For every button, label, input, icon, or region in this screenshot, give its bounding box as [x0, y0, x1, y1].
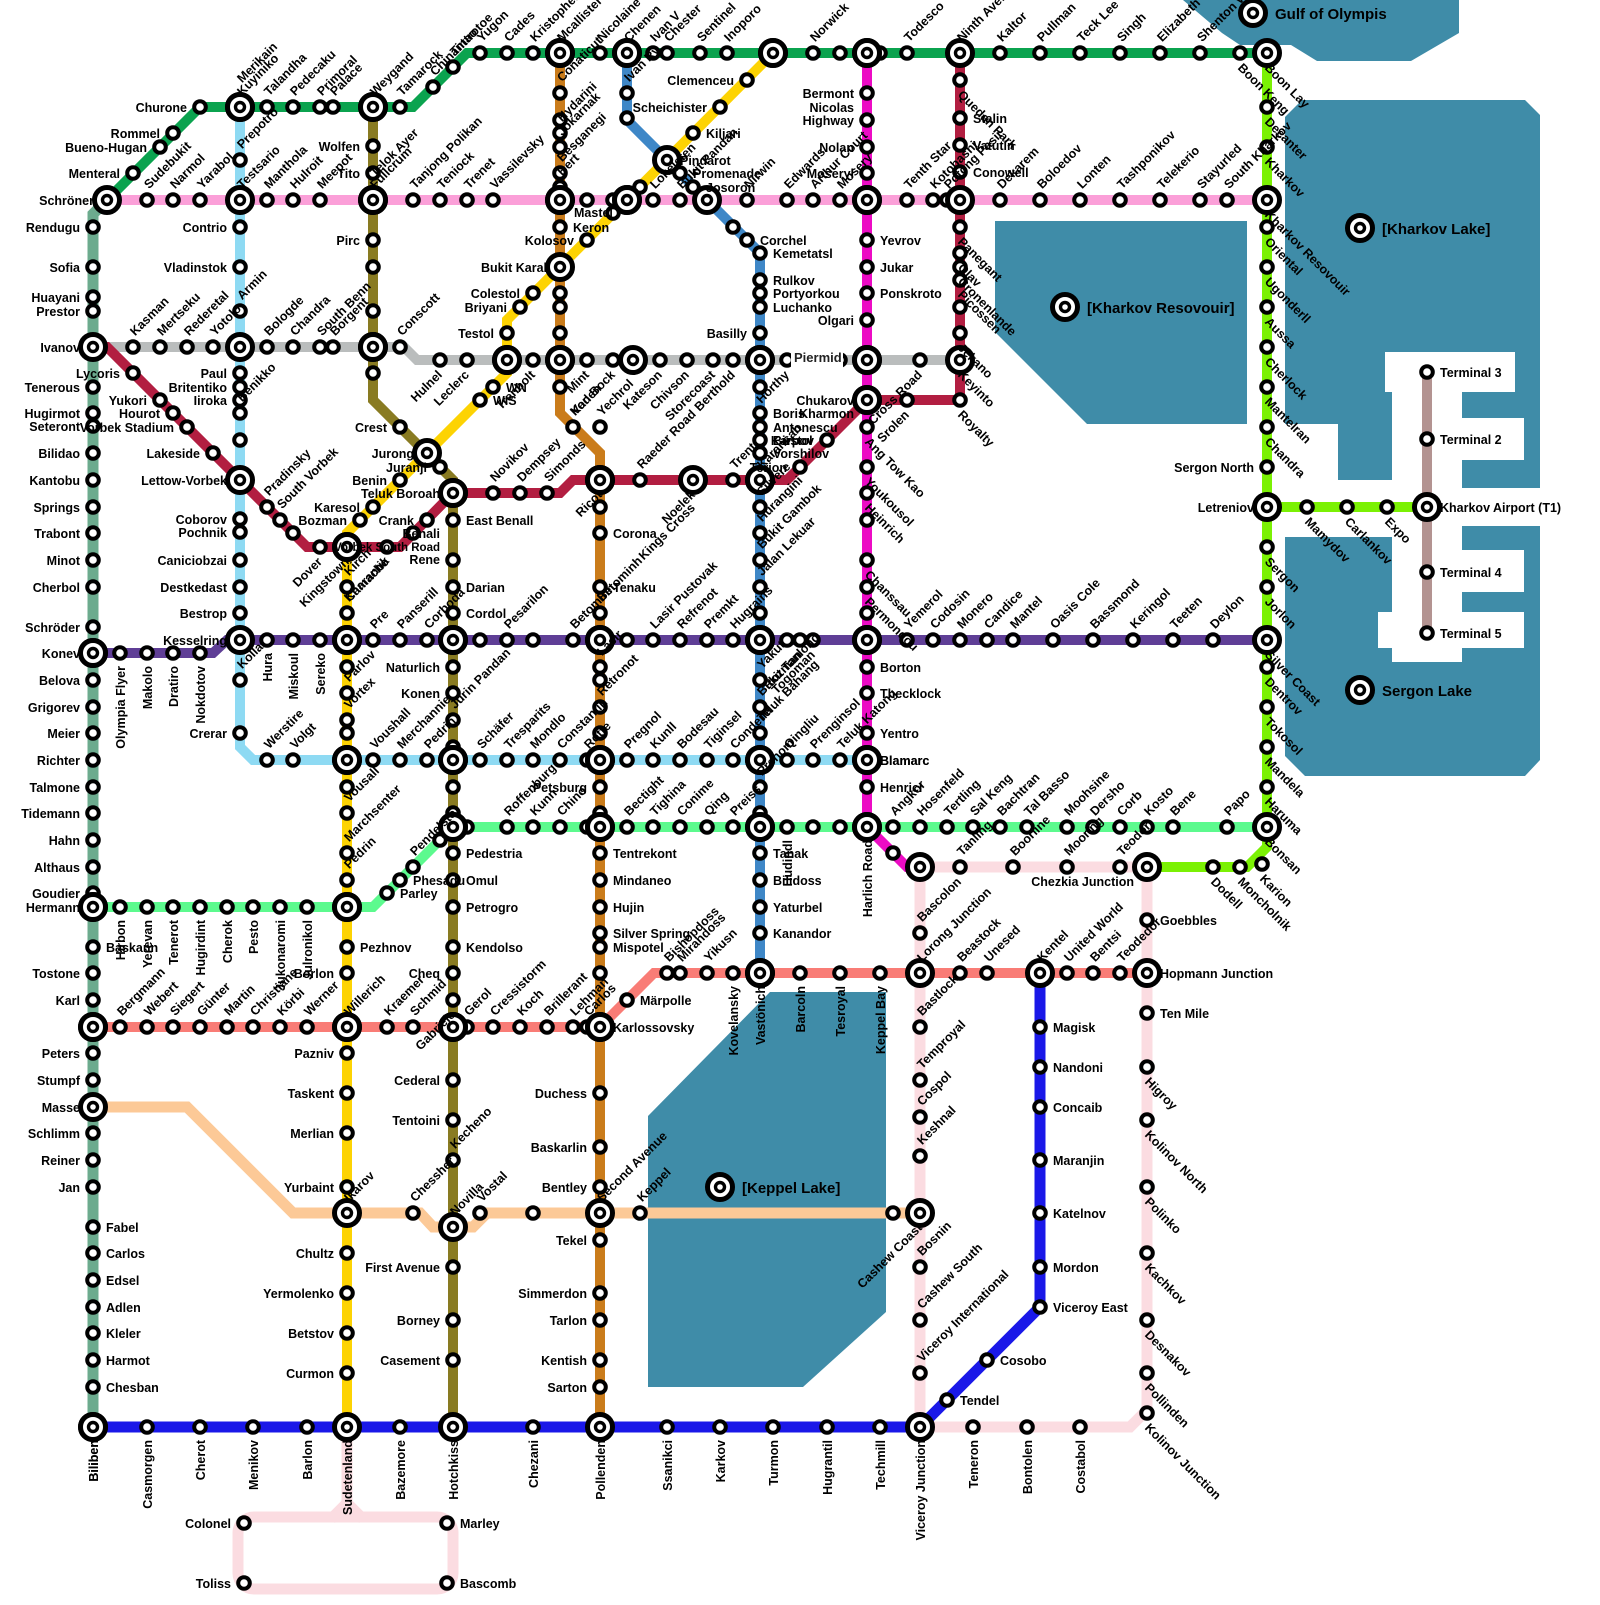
svg-text:Kesselring: Kesselring [163, 634, 227, 648]
svg-text:Rendugu: Rendugu [26, 221, 80, 235]
svg-text:Tito: Tito [337, 167, 360, 181]
svg-text:Phesadu: Phesadu [413, 874, 465, 888]
svg-text:Rulkov: Rulkov [773, 274, 815, 288]
svg-text:Richter: Richter [37, 754, 80, 768]
svg-text:Yentro: Yentro [880, 727, 919, 741]
svg-text:Antonescu: Antonescu [773, 421, 838, 435]
svg-text:Bilidao: Bilidao [38, 447, 80, 461]
svg-text:Mastel: Mastel [574, 206, 613, 220]
svg-text:Portyorkou: Portyorkou [773, 287, 840, 301]
svg-text:Kolosov: Kolosov [525, 234, 574, 248]
svg-text:Tenerot: Tenerot [167, 919, 181, 965]
svg-text:Lakeside: Lakeside [146, 447, 200, 461]
svg-text:Tostone: Tostone [32, 967, 80, 981]
svg-text:Piermid: Piermid [794, 350, 842, 365]
svg-text:Gulf of Olympis: Gulf of Olympis [1275, 6, 1387, 23]
svg-text:Belova: Belova [39, 674, 81, 688]
svg-text:Bueno-Hugan: Bueno-Hugan [65, 141, 147, 155]
svg-text:Nicolas: Nicolas [810, 101, 855, 115]
svg-text:Chesban: Chesban [106, 1381, 159, 1395]
svg-text:Britentiko: Britentiko [169, 381, 228, 395]
svg-text:Teluk Boroah: Teluk Boroah [361, 487, 440, 501]
svg-text:WIS: WIS [493, 394, 517, 408]
svg-text:Hugirdint: Hugirdint [194, 919, 208, 975]
svg-text:Crank: Crank [379, 514, 414, 528]
svg-text:Techmill: Techmill [874, 1440, 888, 1490]
svg-text:Sergon North: Sergon North [1174, 461, 1254, 475]
svg-text:Petrogro: Petrogro [466, 901, 518, 915]
svg-text:Terminal 5: Terminal 5 [1440, 627, 1502, 641]
svg-text:Nolan: Nolan [819, 141, 854, 155]
svg-text:Paul: Paul [201, 367, 227, 381]
svg-text:Lettow-Vorbek: Lettow-Vorbek [141, 474, 227, 488]
svg-text:Yukori: Yukori [109, 394, 147, 408]
svg-text:Basilly: Basilly [707, 327, 747, 341]
svg-text:Marley: Marley [460, 1517, 500, 1531]
svg-text:Mindaneo: Mindaneo [613, 874, 672, 888]
svg-text:Harmot: Harmot [106, 1354, 151, 1368]
svg-text:Hudindl: Hudindl [781, 840, 795, 887]
svg-text:Kiljari: Kiljari [706, 127, 741, 141]
svg-text:Hopmann Junction: Hopmann Junction [1160, 967, 1273, 981]
svg-text:Pindarot: Pindarot [680, 154, 732, 168]
svg-text:Luchanko: Luchanko [773, 301, 832, 315]
svg-text:Parley: Parley [400, 887, 438, 901]
svg-text:First Avenue: First Avenue [365, 1261, 440, 1275]
svg-text:Magisk: Magisk [1053, 1021, 1095, 1035]
svg-text:Kendolso: Kendolso [466, 941, 523, 955]
svg-text:Kharmon: Kharmon [799, 407, 854, 421]
svg-text:Ivanov: Ivanov [40, 341, 80, 355]
svg-text:Karl: Karl [56, 994, 80, 1008]
svg-text:Pazniv: Pazniv [294, 1047, 334, 1061]
svg-text:WN: WN [506, 381, 527, 395]
svg-text:Testol: Testol [458, 327, 494, 341]
svg-text:Mispotel: Mispotel [613, 941, 664, 955]
svg-text:Sereko: Sereko [314, 653, 328, 695]
svg-text:Adlen: Adlen [106, 1301, 141, 1315]
svg-text:Cordol: Cordol [466, 607, 506, 621]
svg-text:Casmorgen: Casmorgen [141, 1440, 155, 1509]
svg-text:Sudetenland: Sudetenland [341, 1440, 355, 1515]
svg-text:Viceroy Junction: Viceroy Junction [914, 1440, 928, 1541]
svg-text:Tekel: Tekel [556, 1234, 587, 1248]
svg-text:Dratiro: Dratiro [167, 666, 181, 707]
svg-text:Costabol: Costabol [1074, 1440, 1088, 1493]
svg-text:Iiroka: Iiroka [194, 394, 228, 408]
svg-text:Konev: Konev [42, 647, 80, 661]
svg-text:Tidemann: Tidemann [21, 807, 80, 821]
svg-text:Yerevan: Yerevan [141, 920, 155, 968]
svg-text:Taskent: Taskent [288, 1087, 335, 1101]
svg-text:Harlich Road: Harlich Road [861, 840, 875, 917]
svg-text:Bazemore: Bazemore [394, 1440, 408, 1500]
svg-text:Huayani: Huayani [31, 291, 80, 305]
svg-text:Vastönich: Vastönich [754, 986, 768, 1045]
svg-text:Konen: Konen [401, 687, 440, 701]
svg-text:Maranjin: Maranjin [1053, 1154, 1104, 1168]
svg-text:Promenade: Promenade [693, 167, 761, 181]
svg-text:[Kharkov Resovouir]: [Kharkov Resovouir] [1087, 300, 1235, 317]
svg-text:Duchess: Duchess [535, 1087, 587, 1101]
svg-text:Merlian: Merlian [290, 1127, 334, 1141]
svg-text:Toliss: Toliss [196, 1577, 231, 1591]
svg-text:Bascomb: Bascomb [460, 1577, 517, 1591]
svg-text:Moseryl: Moseryl [807, 167, 854, 181]
svg-text:Josoron: Josoron [706, 181, 755, 195]
svg-text:Bestrop: Bestrop [180, 607, 228, 621]
svg-text:Omul: Omul [466, 874, 498, 888]
svg-text:Juranji: Juranji [386, 461, 427, 475]
svg-text:Coborov: Coborov [176, 513, 227, 527]
svg-text:Schlimm: Schlimm [28, 1127, 80, 1141]
svg-text:Tendel: Tendel [960, 1394, 999, 1408]
svg-text:Hugrantil: Hugrantil [821, 1440, 835, 1495]
svg-text:Tarlon: Tarlon [550, 1314, 587, 1328]
svg-text:Yevrov: Yevrov [880, 234, 921, 248]
svg-text:Cherok: Cherok [221, 920, 235, 963]
svg-text:Lycoris: Lycoris [76, 367, 120, 381]
svg-text:Karkov: Karkov [714, 1440, 728, 1482]
svg-text:Cherot: Cherot [194, 1439, 208, 1480]
svg-text:Conowell: Conowell [973, 166, 1029, 180]
svg-text:Letreniov: Letreniov [1198, 501, 1254, 515]
svg-text:Yurbaint: Yurbaint [284, 1181, 335, 1195]
svg-text:Katelnov: Katelnov [1053, 1207, 1106, 1221]
svg-text:Cherbol: Cherbol [33, 581, 80, 595]
svg-text:Edsel: Edsel [106, 1274, 139, 1288]
svg-text:Märpolle: Märpolle [640, 994, 691, 1008]
svg-text:Prestor: Prestor [36, 305, 80, 319]
svg-text:Colonel: Colonel [185, 1517, 231, 1531]
svg-text:Churone: Churone [136, 101, 187, 115]
svg-text:Birstol: Birstol [773, 434, 813, 448]
svg-text:Nokdotov: Nokdotov [194, 666, 208, 724]
svg-text:Cederal: Cederal [394, 1074, 440, 1088]
svg-text:Borney: Borney [397, 1314, 440, 1328]
svg-text:Masse: Masse [42, 1101, 80, 1115]
svg-text:Bontolen: Bontolen [1021, 1440, 1035, 1494]
svg-text:Destkedast: Destkedast [160, 581, 228, 595]
svg-text:Crest: Crest [355, 421, 388, 435]
svg-text:Casement: Casement [380, 1354, 441, 1368]
svg-text:Stumpf: Stumpf [37, 1074, 81, 1088]
svg-text:Bozman: Bozman [298, 514, 347, 528]
svg-text:Schröner: Schröner [39, 194, 94, 208]
svg-text:Rommel: Rommel [111, 127, 160, 141]
svg-text:Pezhnov: Pezhnov [360, 941, 411, 955]
svg-text:Hermann: Hermann [26, 901, 80, 915]
svg-text:Yermolenko: Yermolenko [263, 1287, 334, 1301]
svg-text:Pedestria: Pedestria [466, 847, 523, 861]
svg-text:Chukarov: Chukarov [796, 394, 854, 408]
svg-text:Makolo: Makolo [141, 666, 155, 709]
svg-text:Kanandor: Kanandor [773, 927, 831, 941]
svg-text:Grigorev: Grigorev [28, 701, 80, 715]
svg-text:Menteral: Menteral [69, 167, 120, 181]
svg-text:Hotchkiss: Hotchkiss [447, 1440, 461, 1500]
svg-text:Miskoul: Miskoul [287, 653, 301, 700]
svg-text:Peters: Peters [42, 1047, 80, 1061]
svg-text:Chultz: Chultz [296, 1247, 334, 1261]
svg-text:Borton: Borton [880, 661, 921, 675]
svg-text:Karlossovsky: Karlossovsky [613, 1021, 694, 1035]
svg-text:Meier: Meier [47, 727, 80, 741]
svg-text:Darian: Darian [466, 581, 505, 595]
svg-text:Naturlich: Naturlich [386, 661, 440, 675]
svg-text:Bukit Karal: Bukit Karal [481, 261, 547, 275]
svg-text:Corona: Corona [613, 527, 658, 541]
svg-text:Kantobu: Kantobu [29, 474, 80, 488]
svg-text:Bermont: Bermont [803, 87, 855, 101]
svg-text:Jukar: Jukar [880, 261, 913, 275]
svg-text:Blamarc: Blamarc [880, 754, 929, 768]
svg-text:Barcoln: Barcoln [794, 986, 808, 1033]
svg-text:Thecklock: Thecklock [880, 687, 941, 701]
svg-text:Olympia Flyer: Olympia Flyer [114, 666, 128, 749]
svg-text:Pesto: Pesto [247, 920, 261, 954]
svg-text:Goebbles: Goebbles [1160, 914, 1217, 928]
svg-text:Kemetatsl: Kemetatsl [773, 247, 833, 261]
svg-text:Goudier: Goudier [32, 887, 80, 901]
svg-text:Caniciobzai: Caniciobzai [158, 554, 227, 568]
svg-text:Jurong: Jurong [372, 447, 414, 461]
svg-text:Kentish: Kentish [541, 1354, 587, 1368]
svg-text:Reiner: Reiner [41, 1154, 80, 1168]
svg-text:Terminal 2: Terminal 2 [1440, 433, 1502, 447]
svg-text:Highway: Highway [803, 114, 854, 128]
svg-text:Curmon: Curmon [286, 1367, 334, 1381]
svg-text:Briyani: Briyani [465, 301, 507, 315]
svg-text:Contrio: Contrio [183, 221, 228, 235]
svg-text:Teneron: Teneron [967, 1440, 981, 1488]
svg-text:Sergon Lake: Sergon Lake [1382, 683, 1472, 700]
svg-text:Pirc: Pirc [336, 234, 360, 248]
svg-text:Sarton: Sarton [547, 1381, 587, 1395]
svg-text:Mordon: Mordon [1053, 1261, 1099, 1275]
svg-text:Vladinstok: Vladinstok [164, 261, 227, 275]
svg-text:Biliben: Biliben [87, 1440, 101, 1482]
svg-text:Keppel Bay: Keppel Bay [874, 986, 888, 1054]
svg-text:Schröder: Schröder [25, 621, 80, 635]
svg-text:Hujin: Hujin [613, 901, 644, 915]
svg-text:Tentrekont: Tentrekont [613, 847, 677, 861]
svg-text:Sofia: Sofia [49, 261, 81, 275]
svg-text:Minot: Minot [47, 554, 81, 568]
svg-text:Cosobo: Cosobo [1000, 1354, 1047, 1368]
svg-text:Kovelansky: Kovelansky [727, 986, 741, 1056]
svg-text:Olgari: Olgari [818, 314, 854, 328]
svg-text:Clemenceu: Clemenceu [667, 74, 734, 88]
svg-text:Trabont: Trabont [34, 527, 81, 541]
svg-text:Scheichister: Scheichister [633, 101, 707, 115]
svg-text:Hourot: Hourot [119, 407, 161, 421]
svg-text:East Benall: East Benall [466, 514, 533, 528]
svg-text:Crerar: Crerar [189, 727, 227, 741]
svg-text:Pollenden: Pollenden [594, 1440, 608, 1500]
svg-text:Yaturbel: Yaturbel [773, 901, 822, 915]
svg-text:Concaib: Concaib [1053, 1101, 1103, 1115]
svg-text:Bentley: Bentley [542, 1181, 587, 1195]
svg-text:[Keppel Lake]: [Keppel Lake] [742, 1180, 840, 1197]
svg-text:Simmerdon: Simmerdon [518, 1287, 587, 1301]
svg-text:Fabel: Fabel [106, 1221, 139, 1235]
svg-text:Chezkia Junction: Chezkia Junction [1031, 875, 1134, 889]
svg-text:Pochnik: Pochnik [178, 526, 227, 540]
svg-text:Carlos: Carlos [106, 1247, 145, 1261]
svg-text:Tenerous: Tenerous [25, 381, 80, 395]
svg-text:[Kharkov Lake]: [Kharkov Lake] [1382, 221, 1490, 238]
svg-text:Viceroy East: Viceroy East [1053, 1301, 1129, 1315]
svg-text:Hahn: Hahn [49, 834, 80, 848]
svg-text:Julronikol: Julronikol [301, 920, 315, 980]
svg-text:Jan: Jan [58, 1181, 80, 1195]
svg-text:Vorshilov: Vorshilov [773, 447, 829, 461]
svg-text:Chezani: Chezani [527, 1440, 541, 1488]
svg-text:Rene: Rene [409, 553, 440, 567]
svg-text:Ponskroto: Ponskroto [880, 287, 942, 301]
svg-text:Nandoni: Nandoni [1053, 1061, 1103, 1075]
svg-text:Corchel: Corchel [760, 234, 807, 248]
svg-text:Colestol: Colestol [471, 287, 520, 301]
svg-text:Betstov: Betstov [288, 1327, 334, 1341]
svg-text:Baskarlin: Baskarlin [531, 1141, 587, 1155]
svg-text:Tentoini: Tentoini [392, 1114, 440, 1128]
svg-text:Ssanikci: Ssanikci [661, 1440, 675, 1491]
svg-text:Talmone: Talmone [30, 781, 81, 795]
svg-text:Karesol: Karesol [314, 501, 360, 515]
svg-text:Turmon: Turmon [767, 1440, 781, 1486]
svg-text:Barlon: Barlon [301, 1440, 315, 1480]
svg-text:Benali: Benali [402, 527, 440, 541]
svg-text:Kharkov Airport (T1): Kharkov Airport (T1) [1440, 501, 1561, 515]
svg-text:Althaus: Althaus [34, 861, 80, 875]
svg-text:Boris: Boris [773, 407, 805, 421]
svg-text:Tesroyal: Tesroyal [834, 986, 848, 1037]
svg-text:Terminal 3: Terminal 3 [1440, 366, 1502, 380]
svg-text:Ten Mile: Ten Mile [1160, 1007, 1209, 1021]
svg-text:Menikov: Menikov [247, 1440, 261, 1490]
svg-text:Seteront: Seteront [29, 420, 81, 434]
svg-text:Kleler: Kleler [106, 1327, 141, 1341]
svg-text:Terminal 4: Terminal 4 [1440, 566, 1502, 580]
svg-text:Benin: Benin [352, 474, 387, 488]
svg-text:Hugirmot: Hugirmot [24, 407, 80, 421]
svg-text:Hirbon: Hirbon [114, 920, 128, 960]
svg-text:Hura: Hura [261, 652, 275, 682]
svg-text:Wolfen: Wolfen [319, 140, 360, 154]
svg-text:Vorbek Stadium: Vorbek Stadium [80, 421, 174, 435]
svg-text:Springs: Springs [33, 501, 80, 515]
svg-text:Keron: Keron [573, 221, 609, 235]
